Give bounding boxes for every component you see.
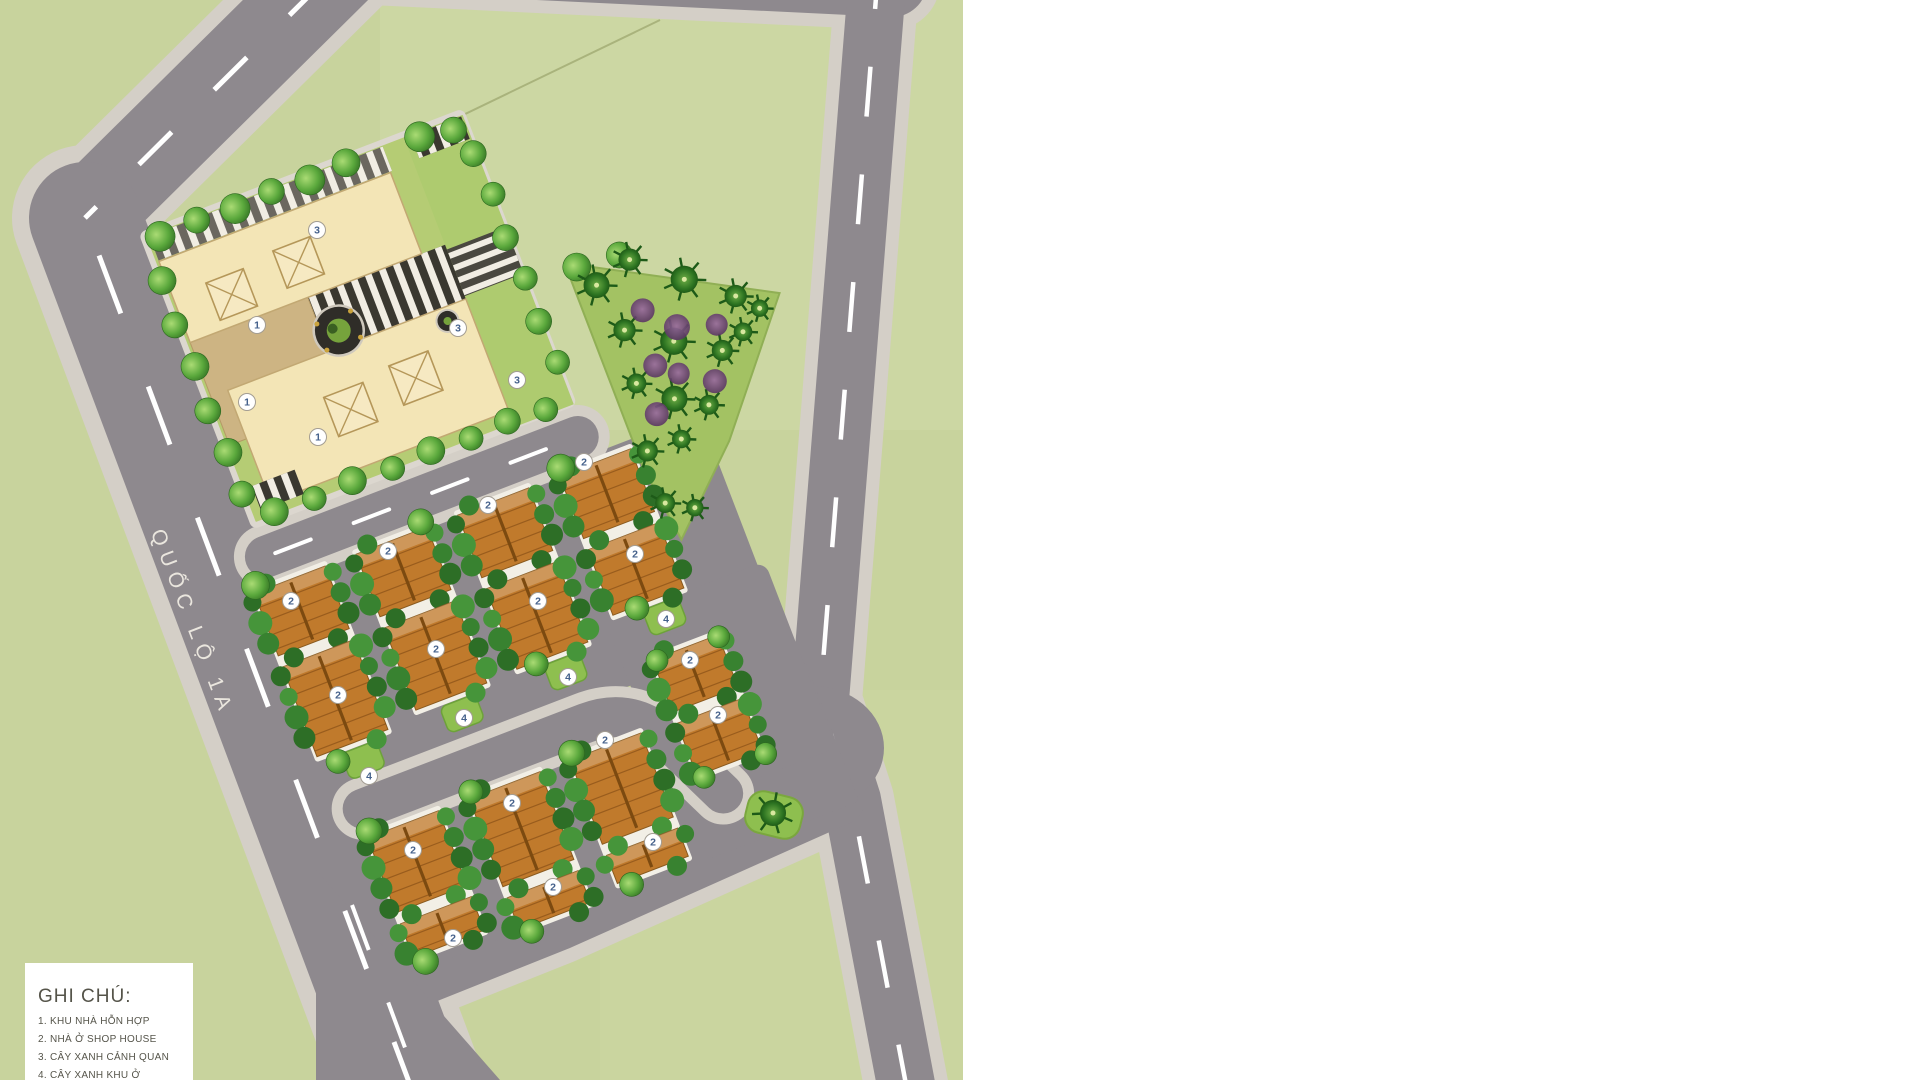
marker-number: 4	[663, 614, 669, 626]
legend-item: 3. CÂY XANH CẢNH QUAN	[38, 1050, 169, 1063]
marker-number: 4	[461, 713, 467, 725]
map-marker-4: 4	[658, 611, 675, 628]
marker-number: 2	[632, 549, 638, 561]
map-marker-2: 2	[530, 593, 547, 610]
map-marker-2: 2	[597, 732, 614, 749]
marker-number: 2	[535, 596, 541, 608]
master-plan-page: QUỐC LỘ 1A 11122222222222222223334444 GH…	[0, 0, 1920, 1080]
marker-number: 2	[485, 500, 491, 512]
legend-item: 1. KHU NHÀ HỖN HỢP	[38, 1014, 150, 1027]
map-marker-4: 4	[361, 768, 378, 785]
map-marker-3: 3	[450, 320, 467, 337]
marker-number: 2	[715, 710, 721, 722]
map-marker-2: 2	[682, 652, 699, 669]
marker-number: 3	[314, 225, 320, 237]
map-marker-4: 4	[560, 669, 577, 686]
map-marker-2: 2	[480, 497, 497, 514]
marker-number: 2	[509, 798, 515, 810]
map-marker-3: 3	[309, 222, 326, 239]
marker-number: 2	[650, 837, 656, 849]
map-marker-3: 3	[509, 372, 526, 389]
map-marker-1: 1	[249, 317, 266, 334]
map-marker-2: 2	[504, 795, 521, 812]
map-marker-2: 2	[428, 641, 445, 658]
marker-number: 3	[514, 375, 520, 387]
map-marker-2: 2	[710, 707, 727, 724]
marker-number: 2	[581, 457, 587, 469]
marker-number: 2	[288, 596, 294, 608]
marker-number: 3	[455, 323, 461, 335]
map-marker-2: 2	[405, 842, 422, 859]
legend-item: 4. CÂY XANH KHU Ở	[38, 1068, 141, 1080]
map-marker-2: 2	[445, 930, 462, 947]
marker-number: 2	[550, 882, 556, 894]
marker-number: 1	[254, 320, 260, 332]
marker-number: 2	[385, 546, 391, 558]
legend-title: GHI CHÚ:	[38, 985, 132, 1007]
map-marker-2: 2	[627, 546, 644, 563]
marker-number: 2	[335, 690, 341, 702]
marker-number: 2	[410, 845, 416, 857]
legend-item: 2. NHÀ Ở SHOP HOUSE	[38, 1032, 157, 1045]
map-marker-2: 2	[645, 834, 662, 851]
marker-number: 4	[565, 672, 571, 684]
marker-number: 2	[433, 644, 439, 656]
marker-number: 2	[450, 933, 456, 945]
map-marker-1: 1	[239, 394, 256, 411]
map-marker-2: 2	[330, 687, 347, 704]
legend: GHI CHÚ: 1. KHU NHÀ HỖN HỢP2. NHÀ Ở SHOP…	[25, 963, 193, 1080]
map-marker-2: 2	[380, 543, 397, 560]
marker-number: 1	[315, 432, 321, 444]
marker-number: 2	[687, 655, 693, 667]
site-plan-canvas: QUỐC LỘ 1A 11122222222222222223334444 GH…	[0, 0, 1920, 1080]
palm-center	[771, 811, 776, 816]
marker-number: 1	[244, 397, 250, 409]
marker-number: 2	[602, 735, 608, 747]
map-marker-1: 1	[310, 429, 327, 446]
map-marker-2: 2	[283, 593, 300, 610]
marker-number: 4	[366, 771, 372, 783]
map-marker-2: 2	[545, 879, 562, 896]
map-marker-4: 4	[456, 710, 473, 727]
map-marker-2: 2	[576, 454, 593, 471]
